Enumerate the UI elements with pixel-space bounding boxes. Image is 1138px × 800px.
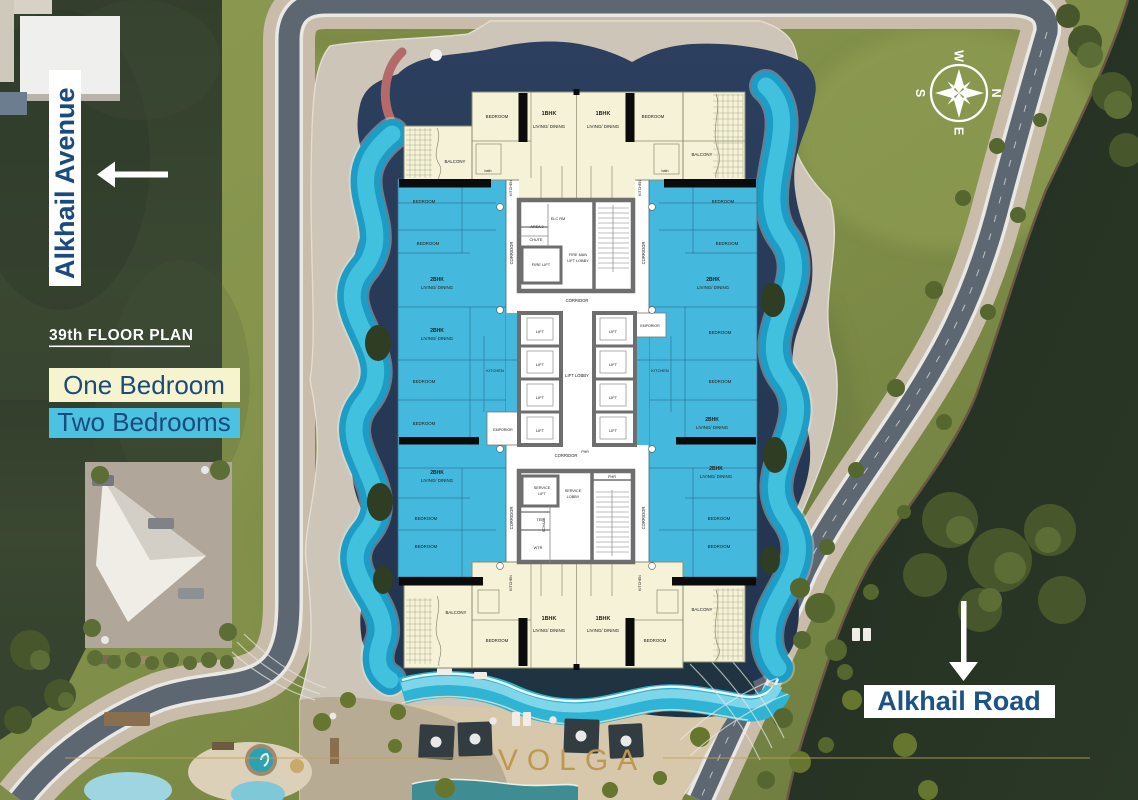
svg-text:2BHK: 2BHK xyxy=(430,328,444,334)
svg-text:1BHK: 1BHK xyxy=(596,616,611,622)
svg-text:LIVING/ DINING: LIVING/ DINING xyxy=(696,425,729,430)
svg-text:BEDROOM: BEDROOM xyxy=(413,421,436,426)
svg-text:S: S xyxy=(913,89,927,97)
svg-text:BEDROOM: BEDROOM xyxy=(642,114,665,119)
svg-text:KITCHEN: KITCHEN xyxy=(486,368,504,373)
svg-text:LIFT LOBBY: LIFT LOBBY xyxy=(565,373,589,378)
svg-text:LIFT: LIFT xyxy=(609,362,618,367)
svg-text:FIRE LIFT: FIRE LIFT xyxy=(532,262,551,267)
svg-text:BALCONY: BALCONY xyxy=(445,159,466,164)
svg-text:BEDROOM: BEDROOM xyxy=(413,199,436,204)
svg-text:2BHK: 2BHK xyxy=(430,470,444,476)
svg-text:BEDROOM: BEDROOM xyxy=(415,544,438,549)
svg-text:BALCONY: BALCONY xyxy=(692,607,713,612)
svg-text:BEDROOM: BEDROOM xyxy=(417,241,440,246)
svg-text:LIFT: LIFT xyxy=(536,362,545,367)
svg-text:Two Bedrooms: Two Bedrooms xyxy=(57,407,230,437)
svg-text:CHUTE: CHUTE xyxy=(529,238,543,242)
svg-text:LIFT: LIFT xyxy=(609,329,618,334)
svg-text:2BHK: 2BHK xyxy=(430,277,444,283)
svg-text:KITCHEN: KITCHEN xyxy=(509,575,513,591)
svg-text:LIFT: LIFT xyxy=(536,329,545,334)
svg-text:1BHK: 1BHK xyxy=(542,111,557,117)
svg-text:LOBBY: LOBBY xyxy=(567,495,580,499)
svg-text:LIFT: LIFT xyxy=(536,395,545,400)
svg-text:LIVING/ DINING: LIVING/ DINING xyxy=(421,478,454,483)
svg-text:1BHK: 1BHK xyxy=(542,616,557,622)
svg-text:CORRIDOR: CORRIDOR xyxy=(641,507,646,530)
svg-text:PHR: PHR xyxy=(581,450,589,454)
svg-text:VOLGA: VOLGA xyxy=(498,744,646,777)
svg-text:2BHK: 2BHK xyxy=(706,277,720,283)
svg-text:CORRIDOR: CORRIDOR xyxy=(566,298,589,303)
svg-text:bath: bath xyxy=(485,169,492,173)
svg-text:ELC RM: ELC RM xyxy=(551,217,565,221)
svg-text:Alkhail Avenue: Alkhail Avenue xyxy=(50,87,80,279)
svg-text:KITCHEN: KITCHEN xyxy=(651,368,669,373)
svg-text:BEDROOM: BEDROOM xyxy=(413,379,436,384)
svg-text:LIFT: LIFT xyxy=(538,492,546,496)
svg-text:CORRIDOR: CORRIDOR xyxy=(555,453,578,458)
svg-text:SCHAAB: SCHAAB xyxy=(542,517,546,532)
svg-text:Alkhail Road: Alkhail Road xyxy=(877,686,1041,716)
svg-text:BEDROOM: BEDROOM xyxy=(709,379,732,384)
svg-text:EMPORIOR: EMPORIOR xyxy=(493,428,513,432)
svg-text:KITCHEN: KITCHEN xyxy=(638,575,642,591)
svg-text:2BHK: 2BHK xyxy=(705,417,719,423)
svg-text:BEDROOM: BEDROOM xyxy=(644,638,667,643)
svg-text:LIVING/ DINING: LIVING/ DINING xyxy=(700,474,733,479)
svg-text:BEDROOM: BEDROOM xyxy=(712,199,735,204)
svg-text:LIVING/ DINING: LIVING/ DINING xyxy=(421,336,454,341)
svg-text:BALCONY: BALCONY xyxy=(692,152,713,157)
svg-text:PHR: PHR xyxy=(608,475,616,479)
svg-text:EMPORIOR: EMPORIOR xyxy=(640,324,660,328)
svg-text:KITCHEN: KITCHEN xyxy=(638,180,642,196)
svg-text:WTR: WTR xyxy=(534,546,543,550)
svg-text:FIRE MAN: FIRE MAN xyxy=(569,253,587,257)
svg-text:BEDROOM: BEDROOM xyxy=(415,516,438,521)
svg-text:BEDROOM: BEDROOM xyxy=(709,330,732,335)
svg-text:LIFT: LIFT xyxy=(609,428,618,433)
svg-text:1BHK: 1BHK xyxy=(596,111,611,117)
svg-text:LIVING/ DINING: LIVING/ DINING xyxy=(697,285,730,290)
svg-text:E: E xyxy=(952,127,966,135)
svg-text:One Bedroom: One Bedroom xyxy=(63,370,225,400)
svg-text:LIVING/ DINING: LIVING/ DINING xyxy=(533,124,566,129)
svg-text:LIVING/ DINING: LIVING/ DINING xyxy=(587,124,620,129)
svg-text:KITCHEN: KITCHEN xyxy=(509,180,513,196)
svg-text:BEDROOM: BEDROOM xyxy=(486,114,509,119)
svg-text:CORRIDOR: CORRIDOR xyxy=(641,242,646,265)
svg-text:BEDROOM: BEDROOM xyxy=(486,638,509,643)
svg-text:LIFT LOBBY: LIFT LOBBY xyxy=(567,259,589,263)
svg-text:2BHK: 2BHK xyxy=(709,466,723,472)
svg-text:LIFT: LIFT xyxy=(536,428,545,433)
svg-text:W: W xyxy=(952,50,966,62)
svg-text:bath: bath xyxy=(662,169,669,173)
svg-text:BEDROOM: BEDROOM xyxy=(708,544,731,549)
svg-text:CORRIDOR: CORRIDOR xyxy=(509,507,514,530)
svg-text:SERVICE: SERVICE xyxy=(565,489,582,493)
svg-text:BEDROOM: BEDROOM xyxy=(716,241,739,246)
svg-text:N: N xyxy=(989,88,1003,97)
svg-text:BEDROOM: BEDROOM xyxy=(708,516,731,521)
svg-text:CORRIDOR: CORRIDOR xyxy=(509,242,514,265)
svg-text:AREA 2: AREA 2 xyxy=(530,225,543,229)
svg-text:LIVING/ DINING: LIVING/ DINING xyxy=(587,628,620,633)
svg-text:BALCONY: BALCONY xyxy=(446,610,467,615)
svg-text:SERVICE: SERVICE xyxy=(534,486,551,490)
svg-text:39th FLOOR PLAN: 39th FLOOR PLAN xyxy=(49,327,193,344)
svg-text:LIFT: LIFT xyxy=(609,395,618,400)
svg-text:LIVING/ DINING: LIVING/ DINING xyxy=(421,285,454,290)
svg-text:LIVING/ DINING: LIVING/ DINING xyxy=(533,628,566,633)
